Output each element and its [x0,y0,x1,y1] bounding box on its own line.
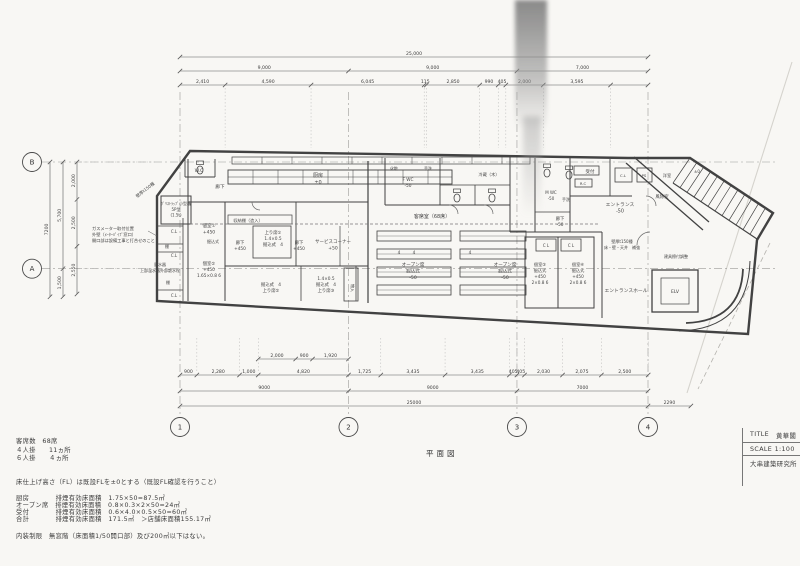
label-cl-4: C L [543,243,550,248]
label-gas-note: ガスメーター取付位置外壁（ﾒｰﾀｰﾊﾟｲﾌﾟ窓口）開口部は設備工事と打合せのこと [92,225,155,244]
dim-text: 1,000 [242,369,255,375]
label-wall-note-tl: 壁厚t150種 [134,180,156,200]
door-swing-arc [252,202,260,210]
label-kitchen: 厨房±0 [313,172,323,186]
label-room-2: 個室②+4501.65×0.8 6 [197,260,221,279]
label-reception: 受付 [586,168,595,175]
label-tategu-note: 建具擦付調整 [664,253,688,259]
dim-text: 2,000 [71,174,77,187]
label-fujo: 風除室 [655,193,669,200]
label-tearai-2: 手洗 [562,196,570,202]
label-room-1-note: 掘込式 [207,238,219,244]
dim-text: 7,000 [576,65,589,71]
label-storage-shelf: 収納棚（造入） [233,217,262,224]
dim-text: 2,410 [196,79,209,85]
label-service-corner: サービスコーナー+50 [315,238,351,251]
dim-text: 2,280 [212,369,225,375]
label-corridor-right: 廊下-50 [556,215,565,228]
toilet-tank [197,161,204,165]
dim-text: 4,590 [261,79,274,85]
title-value: 黄華閣 [776,431,796,440]
toilet-tank [489,189,496,193]
stair-tread [673,158,690,183]
stair-tread [736,199,752,225]
note-floor-level: 床仕上げ高さ（FL）は既設FLを±0とする（既設FL確認を行うこと） [16,477,220,486]
label-guest-seats: 客席室（68席） [414,213,450,220]
site-boundary-line [698,243,770,389]
stair-tread [715,186,731,212]
label-agari-2: 掘込式 4上り席② [261,281,281,294]
stair-tread [708,181,724,206]
label-room-1: 個室①+450 [202,222,215,235]
stair-tread [694,172,711,197]
dim-text: 3,435 [471,369,484,375]
dim-text: 4,820 [297,369,310,375]
label-seat-count-2: 4 [413,250,416,255]
label-open-2: オープン席掘込式-50 [494,261,517,281]
stair-tread [701,176,717,201]
toilet-icon [544,169,550,177]
toilet-icon [454,194,460,202]
label-grease-trap: ｸﾞﾘｽﾄﾗｯﾌﾟ小型槽5P型(1.5t) [161,200,191,218]
dim-text: 9,000 [426,65,439,71]
stair-tread [680,163,697,188]
grid-bubble-label-1: 1 [178,424,182,432]
stair-tread [757,213,772,239]
sheet-caption: 平面図 [426,448,458,459]
scan-smudge-dark [515,0,547,130]
label-reizo: 冷蔵（木） [479,171,500,178]
label-kesho: 化粧 [390,165,398,171]
label-mono-ire: 物入 [350,284,356,292]
dim-text: 25,000 [406,51,422,57]
stair-tread [729,195,745,221]
dim-text: 3,595 [570,79,583,85]
dim-text: 115 [421,79,430,85]
grid-bubble-label-B: B [30,159,35,167]
label-cl-6: C.L [620,173,627,178]
dim-text: 7000 [577,385,589,391]
leader-line [148,231,157,236]
grid-bubble-label-A: A [30,265,35,273]
label-wc: W.C [195,168,204,174]
note-six-top: ６人掛 ４ヵ所 [16,453,69,462]
note-seat-count: 客席数 68席 [16,436,58,445]
ramp-inner [679,261,750,331]
label-tearai-1: 手洗 [424,165,432,171]
dim-text: 5,700 [57,209,63,222]
dim-text: 405 [516,369,525,375]
label-agari-1: 上り席①1.4×0.5掘込式 4 [263,229,283,248]
label-closet-tana-1: 棚 [165,243,169,249]
dim-text: 2,500 [71,216,77,229]
door-swing-arc [449,205,458,214]
dim-text: 1,500 [57,276,63,289]
dim-text: 9,000 [258,65,271,71]
toilet-icon [566,171,572,179]
label-entrance-hall: エントランスホール [604,288,647,294]
note-interior-limit: 内装制限 無窓階（床面積1/50開口部）及び200㎡以下はない。 [16,531,209,540]
label-seat-count-3: 4 [469,250,472,255]
stair-tread [722,190,738,216]
label-ps: PS [642,173,647,178]
label-corridor-mid-1: 廊下+450 [234,239,246,252]
dim-text: 25000 [407,400,422,406]
label-room-3: 個室③掘込式+4502×0.8 6 [532,261,549,285]
dim-text: 2290 [664,400,676,406]
floorplan-sheet: W.C壁厚t150種ｸﾞﾘｽﾄﾗｯﾌﾟ小型槽5P型(1.5t)廊下ガスメーター取… [0,0,800,566]
label-seat-count-1: 4 [398,250,401,255]
title-label: TITLE [750,431,769,440]
toilet-tank [566,166,573,170]
label-corridor-mid-2: 廊下+450 [293,239,305,252]
dim-text: 1,725 [358,369,371,375]
label-mwc: M WC-50 [545,190,557,201]
label-elv: ELV [671,289,680,295]
label-yoshitsu: 洋室 [663,172,671,179]
toilet-tank [454,189,461,193]
dim-text: 9000 [427,385,439,391]
label-room-4: 個室④掘込式+4502×0.8 6 [570,261,587,285]
notes-block: 客席数 68席 ４人掛 11ヵ所 ６人掛 ４ヵ所 床仕上げ高さ（FL）は既設FL… [16,436,346,546]
dim-text: 2,550 [71,263,77,276]
dim-text: 900 [300,353,309,359]
kitchen-equipment-band [232,157,530,164]
label-rc: R.C [580,181,587,186]
label-entrance: エントランス-50 [606,202,635,215]
dim-text: 3,435 [406,369,419,375]
dim-text: 405 [498,79,507,85]
label-closet-tana-2: 棚 [166,279,170,285]
label-corridor-top: 廊下 [215,183,225,190]
door-swing-arc [484,205,493,214]
dim-text: 2,030 [537,369,550,375]
toilet-tank [544,164,551,168]
label-closet-cl-2: C.L [171,253,178,258]
dim-text: 2,850 [446,79,459,85]
label-fwc: F WC-50 [402,177,413,189]
wall-line [634,157,709,222]
dim-text: 6,045 [361,79,374,85]
dim-text: 2,075 [575,369,588,375]
label-closet-cl-1: C.L [171,229,178,234]
scale-label: SCALE 1:100 [743,442,800,455]
grid-bubble-label-4: 4 [646,424,651,432]
title-block: TITLE 黄華閣 SCALE 1:100 大串建築研究所 [742,428,800,486]
dim-text: 2,500 [618,369,631,375]
label-closet-cl-3: C.L [171,293,178,298]
building-outline [157,151,773,334]
grid-bubble-label-2: 2 [346,424,350,432]
note-smoke-total: 合計 排煙有効床面積 171.5㎡ ＞店舗床面積155.17㎡ [16,514,211,523]
label-cl-5: C L [568,243,575,248]
dim-text: 9000 [258,385,270,391]
firm-name: 大串建築研究所 [743,455,800,470]
dim-text: 1,920 [324,353,337,359]
scan-smudge-light [523,116,541,216]
dim-text: 2,000 [270,353,283,359]
label-agari-3: 1.4×0.5掘込式 4上り席③ [316,276,336,294]
label-wall-note-r: 壁厚t150種床・壁・天井 補強 [604,238,640,250]
label-open-1: オープン席掘込式-50 [402,261,425,281]
dim-text: 990 [485,79,494,85]
label-plus-minus-zero: ±0 [694,169,700,174]
toilet-icon [489,194,495,202]
dim-text: 7200 [44,223,50,235]
grid-bubble-label-3: 3 [515,424,519,432]
dim-text: 900 [184,369,193,375]
label-water-meter: 量水器上部温水器外部散水栓 [140,261,180,273]
